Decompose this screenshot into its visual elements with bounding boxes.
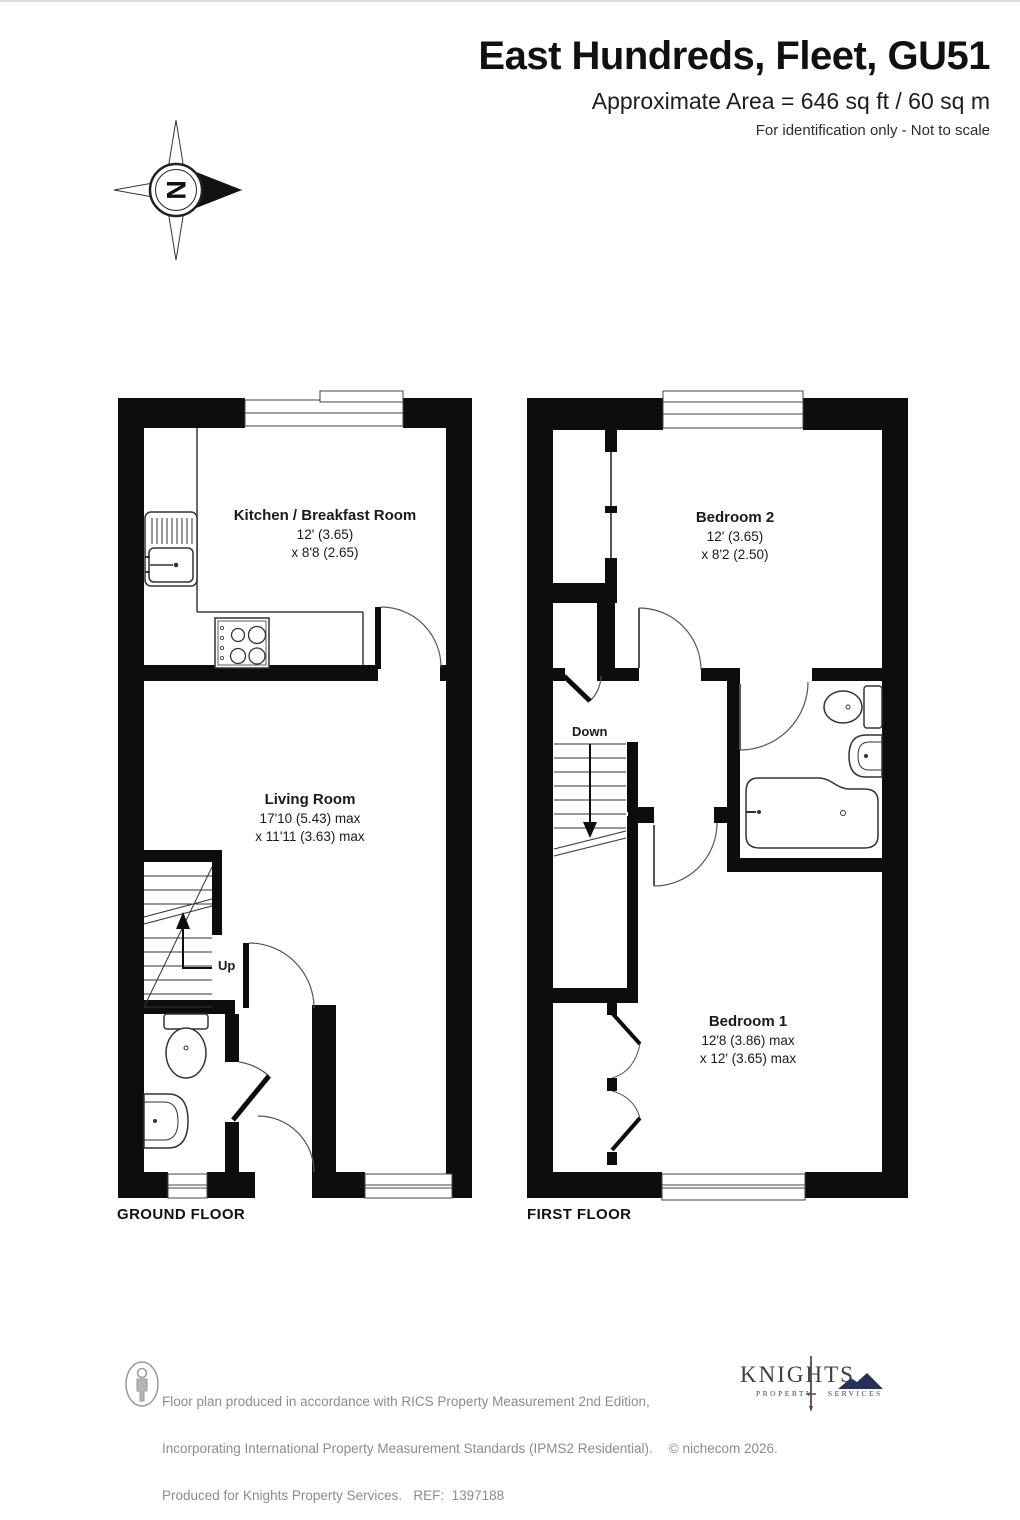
header: East Hundreds, Fleet, GU51 Approximate A…	[478, 34, 990, 139]
approximate-area: Approximate Area = 646 sq ft / 60 sq m	[478, 88, 990, 115]
gf-door-arcs	[239, 607, 441, 1172]
bedroom2-label: Bedroom 2 12' (3.65) x 8'2 (2.50)	[696, 508, 774, 565]
basin-icon	[849, 735, 882, 777]
footer-line2: Incorporating International Property Mea…	[162, 1441, 778, 1457]
cupboard-door-leaf	[564, 676, 590, 701]
living-room-label: Living Room 17'10 (5.43) max x 11'11 (3.…	[255, 790, 364, 847]
compass-north-label: N	[161, 180, 191, 200]
hob-icon	[215, 618, 269, 668]
toilet-icon	[164, 1014, 208, 1078]
bathtub-icon	[746, 778, 878, 848]
sword-icon	[806, 1354, 816, 1414]
toilet-icon	[824, 686, 882, 728]
gf-stairs	[144, 867, 212, 1007]
kitchen-sink-icon	[145, 512, 197, 586]
logo-subtitle: PROPERTY SERVICES	[756, 1389, 883, 1398]
roof-icon	[838, 1372, 884, 1390]
page-title: East Hundreds, Fleet, GU51	[478, 34, 990, 79]
knights-logo: KNIGHTS PROPERTY SERVICES	[740, 1352, 900, 1422]
ground-floor-label: GROUND FLOOR	[117, 1206, 245, 1223]
wc-door-leaf	[233, 1076, 269, 1120]
down-label: Down	[572, 724, 607, 739]
page-top-border	[0, 0, 1020, 2]
bedroom1-label: Bedroom 1 12'8 (3.86) max x 12' (3.65) m…	[700, 1012, 796, 1069]
compass-rose-icon: N	[106, 112, 246, 262]
up-arrow-icon	[176, 912, 212, 968]
scale-disclaimer: For identification only - Not to scale	[478, 122, 990, 139]
footer-line3: Produced for Knights Property Services. …	[162, 1488, 778, 1504]
footer-line1: Floor plan produced in accordance with R…	[162, 1394, 778, 1410]
up-label: Up	[218, 958, 235, 973]
person-scale-icon	[124, 1360, 160, 1408]
first-floor-label: FIRST FLOOR	[527, 1206, 631, 1223]
kitchen-label: Kitchen / Breakfast Room 12' (3.65) x 8'…	[234, 506, 417, 563]
copyright: © nichecom 2026.	[669, 1441, 778, 1456]
basin-icon	[144, 1094, 188, 1148]
